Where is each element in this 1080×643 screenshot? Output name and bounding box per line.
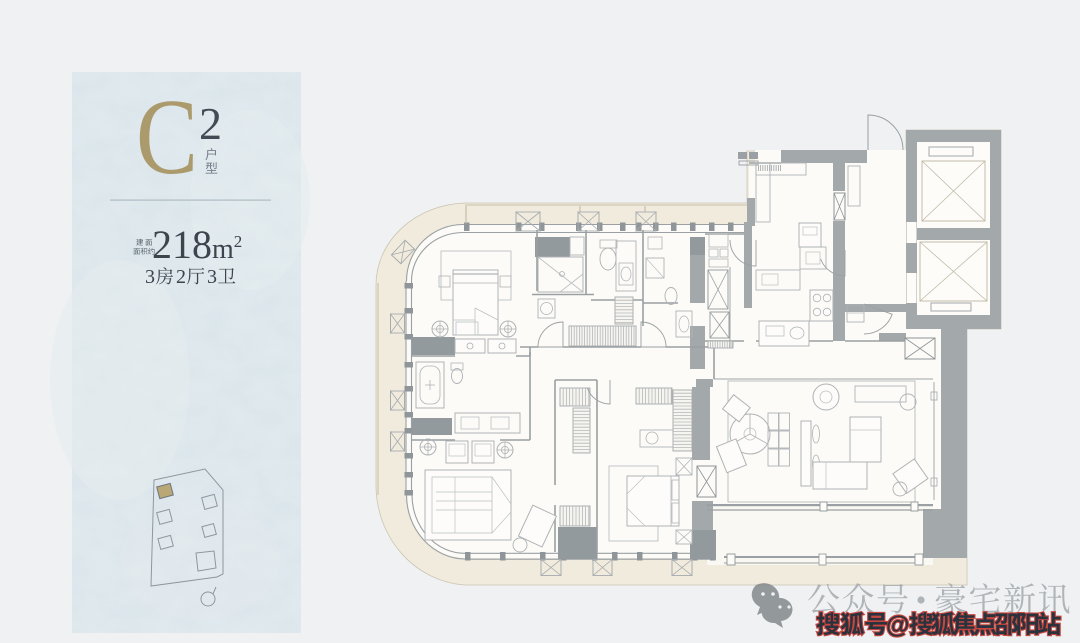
svg-text:2: 2 [176, 266, 186, 288]
svg-text:C: C [136, 76, 198, 196]
svg-text:3: 3 [207, 266, 217, 288]
svg-text:2: 2 [199, 98, 222, 149]
svg-text:3: 3 [145, 266, 155, 288]
svg-text:@: @ [886, 612, 909, 639]
